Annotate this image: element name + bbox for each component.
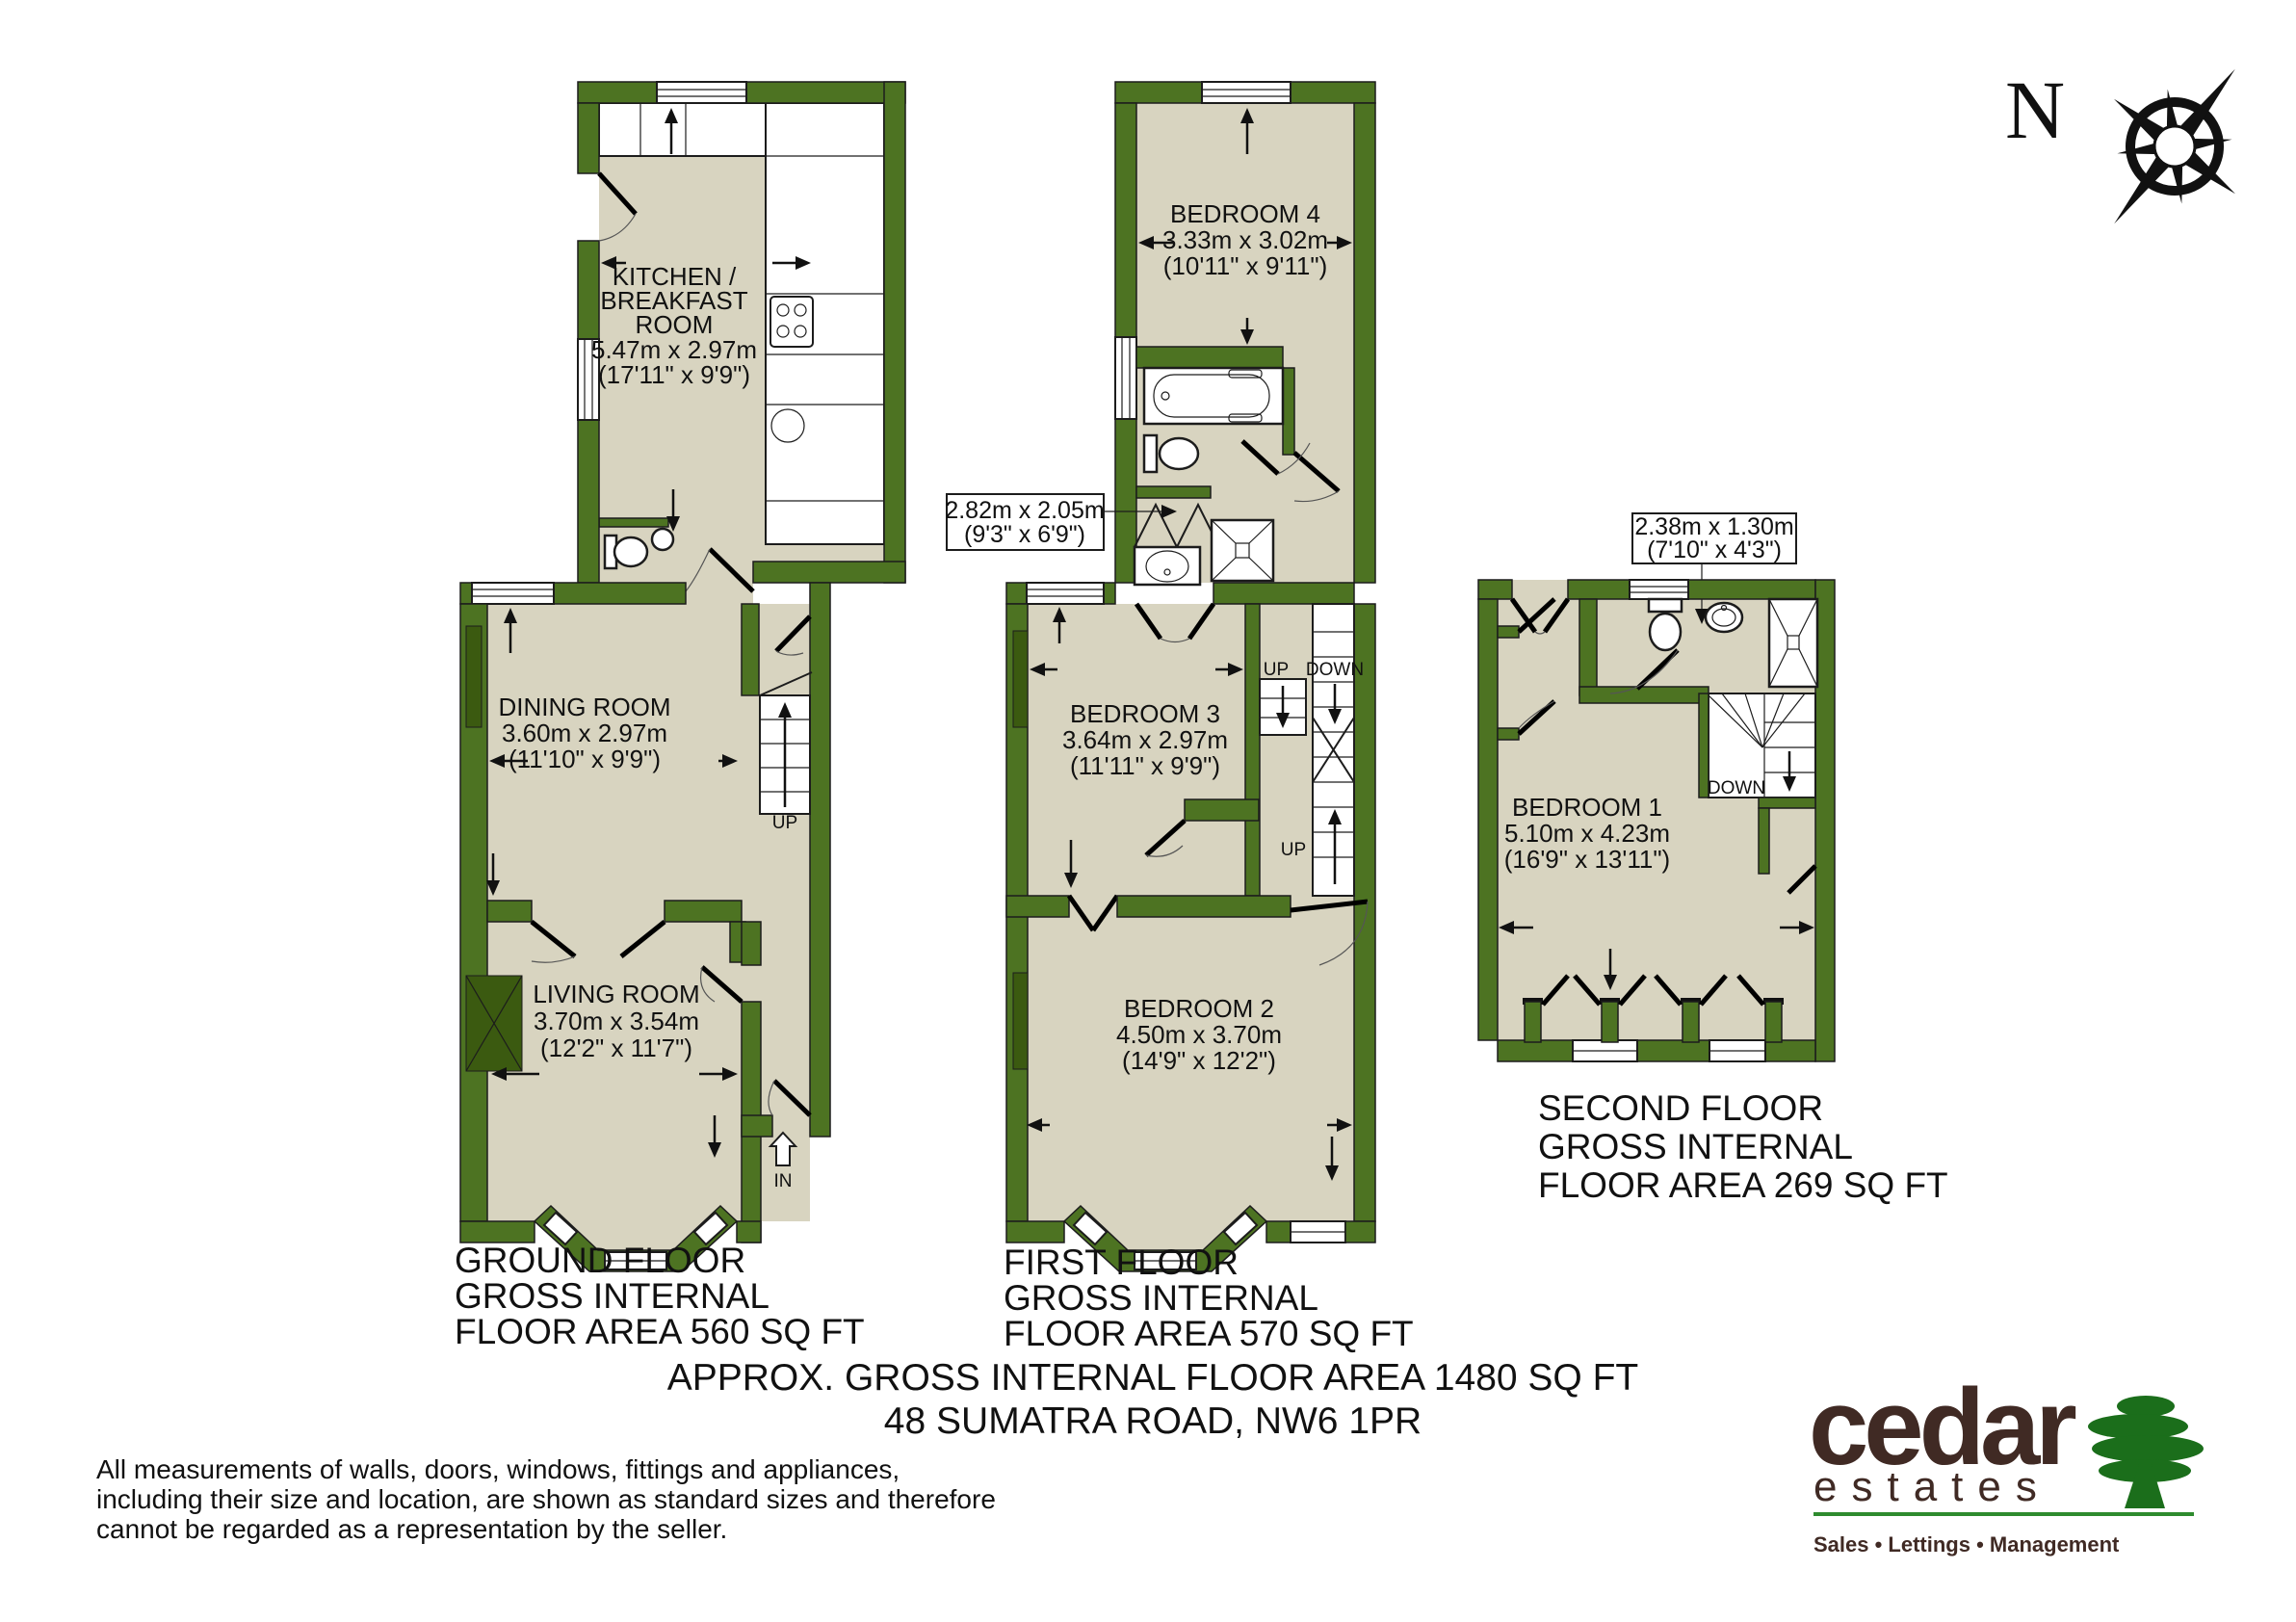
- first-caption-2: GROSS INTERNAL: [1004, 1278, 1318, 1318]
- hob-icon: [770, 297, 813, 347]
- living-dim-m: 3.70m x 3.54m: [534, 1007, 699, 1035]
- dining-dim-ft: (11'10" x 9'9"): [509, 745, 661, 773]
- bedroom3-side-window: [1013, 631, 1028, 727]
- kitchen-dim-ft: (17'11" x 9'9"): [598, 360, 750, 389]
- summary-address: 48 SUMATRA ROAD, NW6 1PR: [884, 1400, 1422, 1442]
- second-caption-3: FLOOR AREA 269 SQ FT: [1538, 1165, 1948, 1205]
- bedroom2-dim-ft: (14'9" x 12'2"): [1122, 1046, 1276, 1075]
- disclaimer-line: including their size and location, are s…: [96, 1484, 996, 1514]
- ground-caption-3: FLOOR AREA 560 SQ FT: [455, 1312, 865, 1351]
- bathroom-dim-m: 2.82m x 2.05m: [945, 497, 1104, 524]
- second-top-window: [1630, 580, 1688, 599]
- bedroom2-side-window: [1013, 973, 1028, 1069]
- bedroom3-top-window: [1027, 583, 1104, 604]
- bedroom3-label: BEDROOM 3: [1070, 699, 1220, 728]
- bathroom-dim-ft: (9'3" x 6'9"): [964, 521, 1085, 548]
- bathtub-icon: [1144, 368, 1283, 424]
- disclaimer-line: All measurements of walls, doors, window…: [96, 1454, 900, 1484]
- disclaimer-line: cannot be regarded as a representation b…: [96, 1514, 727, 1544]
- first-caption-1: FIRST FLOOR: [1004, 1243, 1239, 1282]
- floorplan-page: UP IN: [0, 0, 2296, 1622]
- compass-rose-icon: N: [2005, 18, 2296, 274]
- second-caption-2: GROSS INTERNAL: [1538, 1127, 1853, 1166]
- entrance-label: IN: [774, 1171, 793, 1191]
- stairs-down-label: DOWN: [1708, 778, 1765, 798]
- shower-icon: [1212, 520, 1273, 581]
- bathroom-side-window: [1115, 337, 1136, 419]
- second-floor-plan: 2.38m x 1.30m (7'10" x 4'3"): [1478, 513, 1948, 1205]
- stairs-down-label: DOWN: [1306, 660, 1364, 680]
- cedar-estates-logo: cedar estates Sales • Lettings • Managem…: [1809, 1367, 2204, 1557]
- logo-divider: [1813, 1512, 2194, 1516]
- bedroom1-dim-m: 5.10m x 4.23m: [1504, 819, 1670, 848]
- dining-label: DINING ROOM: [498, 693, 670, 721]
- dining-dim-m: 3.60m x 2.97m: [502, 719, 667, 747]
- first-caption-3: FLOOR AREA 570 SQ FT: [1004, 1314, 1414, 1353]
- second-bath-dim-ft: (7'10" x 4'3"): [1647, 536, 1782, 563]
- disclaimer: All measurements of walls, doors, window…: [96, 1454, 996, 1544]
- bedroom4-dim-ft: (10'11" x 9'11"): [1163, 251, 1328, 280]
- bedroom4-window: [1202, 82, 1291, 103]
- bathroom-sink-icon: [1135, 547, 1200, 585]
- bedroom1-dim-ft: (16'9" x 13'11"): [1504, 845, 1670, 874]
- dining-top-window: [472, 583, 554, 604]
- shower-icon: [1769, 599, 1817, 687]
- living-label: LIVING ROOM: [533, 980, 699, 1008]
- wc-basin-icon: [652, 529, 673, 550]
- bedroom1-label: BEDROOM 1: [1512, 793, 1662, 822]
- stairs-up-label: UP: [1264, 660, 1289, 680]
- toilet-icon: [1144, 435, 1198, 472]
- kitchen-window: [657, 82, 746, 103]
- living-dim-ft: (12'2" x 11'7"): [540, 1033, 692, 1062]
- stairs-up2-label: UP: [1281, 840, 1306, 860]
- bedroom3-dim-m: 3.64m x 2.97m: [1062, 725, 1228, 754]
- bedroom2-dim-m: 4.50m x 3.70m: [1116, 1020, 1282, 1049]
- floorplan-drawing: UP IN: [0, 0, 2296, 1622]
- compass-north-label: N: [2005, 64, 2065, 156]
- logo-tagline: Sales • Lettings • Management: [1813, 1532, 2120, 1557]
- second-caption-1: SECOND FLOOR: [1538, 1088, 1823, 1128]
- ground-floor-plan: UP IN: [455, 82, 905, 1351]
- stairs-up-label: UP: [772, 813, 797, 833]
- toilet-icon: [1649, 599, 1682, 650]
- logo-brand2-text: estates: [1813, 1463, 2051, 1510]
- bedroom2-label: BEDROOM 2: [1124, 994, 1274, 1023]
- bedroom4-label: BEDROOM 4: [1170, 199, 1320, 228]
- summary-area: APPROX. GROSS INTERNAL FLOOR AREA 1480 S…: [667, 1357, 1639, 1399]
- bedroom3-dim-ft: (11'11" x 9'9"): [1070, 751, 1220, 780]
- ground-caption-1: GROUND FLOOR: [455, 1241, 745, 1280]
- bedroom4-dim-m: 3.33m x 3.02m: [1162, 225, 1328, 254]
- cedar-tree-icon: [2088, 1396, 2204, 1508]
- dining-side-window: [466, 626, 482, 727]
- sink-icon: [1706, 603, 1742, 632]
- ground-caption-2: GROSS INTERNAL: [455, 1276, 770, 1316]
- first-floor-plan: 2.82m x 2.05m (9'3" x 6'9"): [945, 82, 1413, 1353]
